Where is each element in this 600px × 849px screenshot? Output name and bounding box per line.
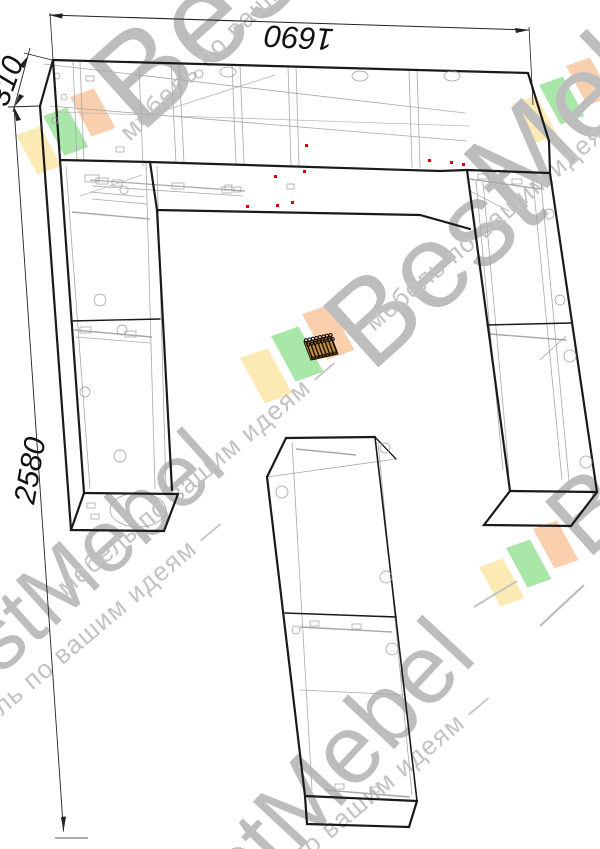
svg-text:2580: 2580 [8, 434, 52, 507]
svg-text:1690: 1690 [264, 18, 335, 57]
svg-text:мебель по вашим идеям —: мебель по вашим идеям — [51, 349, 344, 602]
